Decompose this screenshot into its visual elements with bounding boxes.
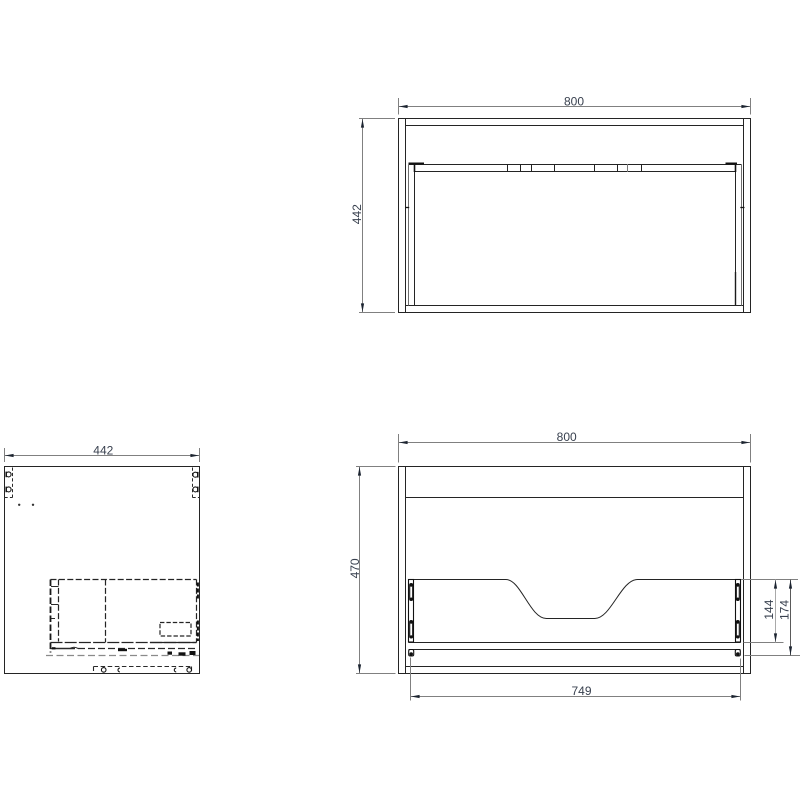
svg-text:442: 442 bbox=[350, 204, 364, 224]
svg-text:470: 470 bbox=[348, 558, 362, 578]
svg-text:749: 749 bbox=[571, 684, 591, 698]
svg-text:144: 144 bbox=[762, 599, 776, 619]
svg-text:174: 174 bbox=[777, 600, 791, 620]
svg-text:800: 800 bbox=[564, 94, 584, 108]
svg-text:800: 800 bbox=[557, 430, 577, 444]
svg-text:442: 442 bbox=[93, 444, 113, 458]
